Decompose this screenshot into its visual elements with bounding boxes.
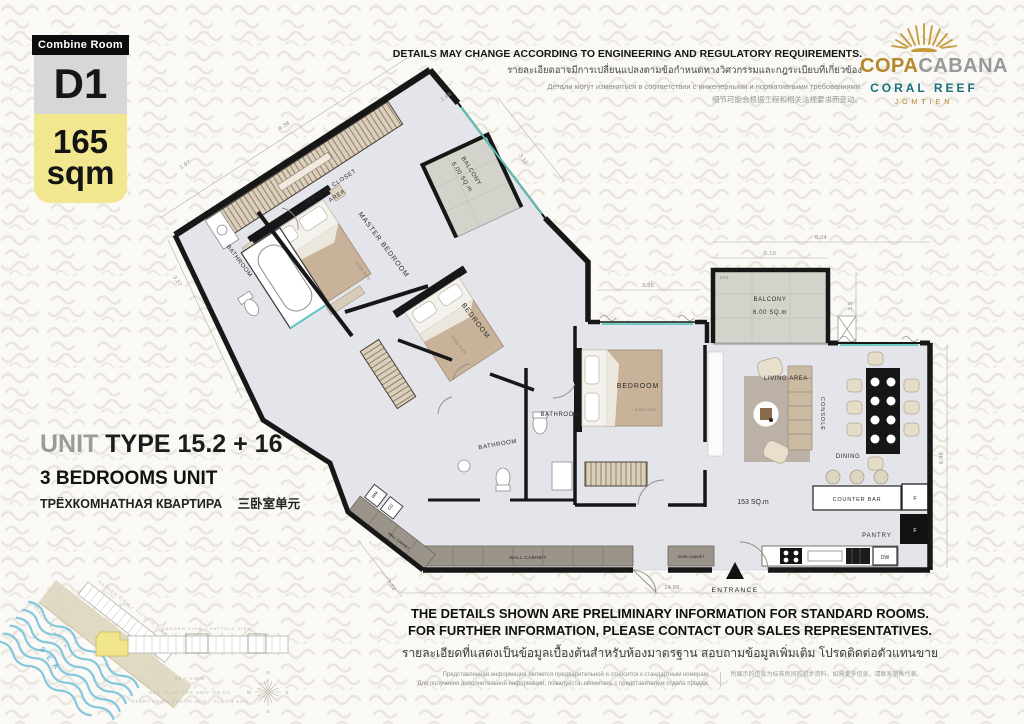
sunburst-icon [860, 20, 988, 52]
dim-balcony1-side: 3.10 [517, 153, 529, 166]
compass-w: W [247, 690, 252, 695]
brand-logo: COPACABANA CORAL REEF JOMTIEN [860, 20, 988, 106]
dim-bottom: 14.88 [664, 585, 679, 591]
brand-location: JOMTIEN [860, 99, 988, 106]
console-label: CONSOLE [819, 397, 825, 431]
bottom-disclaimer: THE DETAILS SHOWN ARE PRELIMINARY INFORM… [392, 606, 948, 689]
key-plan-caption-2: START FROM FLOOR 40th - FLOOR 54th [131, 699, 249, 705]
fridge-box: F [902, 484, 928, 510]
compass-icon [255, 679, 281, 705]
bedrooms-ru: ТРЁХКОМНАТНАЯ КВАРТИРА [40, 497, 222, 511]
kitchen-strip: DW [762, 546, 898, 566]
bottom-disclaimer-en2: FOR FURTHER INFORMATION, PLEASE CONTACT … [392, 623, 948, 640]
bottom-disclaimer-en1: THE DETAILS SHOWN ARE PRELIMINARY INFORM… [392, 606, 948, 623]
dim-left-2: 3.57 [171, 275, 183, 288]
brand-subtitle: CORAL REEF [860, 81, 988, 95]
brand-wordmark: COPACABANA [860, 55, 988, 78]
combine-room-tag: Combine Room [32, 35, 129, 55]
balcony-2-name: BALCONY [754, 297, 787, 303]
dim-end-wall: 4.38 [278, 120, 291, 132]
brochure-page: BALCONY 6.00 SQ.m BALCONY 6.00 SQ.m SPD. [0, 0, 1024, 724]
unit-type-title: UNIT TYPE 15.2 + 16 [40, 430, 300, 459]
key-plan-caption-1: KEY PLAN FOR UNIT ON D1 [149, 690, 231, 696]
pantry-label: PANTRY [862, 533, 892, 539]
dishwasher-label: DW [881, 555, 890, 561]
unit-badge: Combine Room D1 165 sqm [32, 35, 129, 203]
dim-left-1: 1.97 [179, 159, 192, 171]
wall-cabinet-strip: WALL CABINET [423, 546, 633, 566]
sea-view-label: SEA VIEW [174, 676, 205, 681]
unit-area-badge: 165 sqm [34, 114, 127, 203]
dim-bedroom3-window: 3.36 [642, 283, 654, 289]
spd-label: SPD. [720, 276, 730, 280]
brand-word-right: CABANA [918, 55, 1008, 77]
balcony-2-area: 6.00 SQ.m [753, 310, 787, 316]
bedroom-3-bed [574, 348, 662, 432]
bottom-disclaimer-th: รายละเอียดที่แสดงเป็นข้อมูลเบื้องต้นสำหร… [392, 644, 948, 663]
shoe-cabinet-label: SHOE CABINET [678, 555, 706, 559]
wall-cabinet-label: WALL CABINET [509, 555, 546, 560]
bedrooms-intl: ТРЁХКОМНАТНАЯ КВАРТИРА 三卧室单元 [40, 493, 300, 512]
compass-e: E [285, 690, 288, 695]
counter-bar-label: COUNTER BAR [833, 497, 882, 503]
bedroom-3-curtain [708, 352, 723, 456]
garden-view-horizontal-label: GARDEN VIEW / PATTAYA VIEW [162, 626, 253, 631]
unit-info: UNIT TYPE 15.2 + 16 3 BEDROOMS UNIT ТРЁХ… [40, 430, 300, 512]
unit-area-unit: sqm [34, 157, 127, 188]
key-plan-horizontal-wing [128, 634, 288, 653]
divider [720, 672, 721, 687]
dim-right-side: 6.48 [939, 452, 945, 464]
top-disclaimer: DETAILS MAY CHANGE ACCORDING TO ENGINEER… [382, 48, 862, 105]
total-area-label: 153 SQ.m [737, 499, 769, 506]
bedrooms-zh: 三卧室单元 [238, 497, 301, 511]
shoe-cabinet-strip: SHOE CABINET [668, 546, 714, 566]
bedroom-3-wardrobe [585, 462, 647, 486]
balcony-2: BALCONY 6.00 SQ.m SPD. [713, 270, 856, 343]
top-disclaimer-zh: 细节可能会根据工程和相关法规要求而变动。 [382, 94, 862, 105]
top-disclaimer-ru: Детали могут изменяться в соответствии с… [382, 82, 862, 91]
dining-label: DINING [836, 454, 861, 460]
dim-balcony2-gap: 1.5 [848, 302, 854, 311]
top-disclaimer-en: DETAILS MAY CHANGE ACCORDING TO ENGINEER… [382, 48, 862, 60]
bathroom-3-label: BATHROOM [540, 412, 579, 418]
unit-type-value: TYPE 15.2 + 16 [105, 430, 282, 458]
compass-n: N [266, 670, 269, 675]
unit-area-value: 165 [34, 126, 127, 157]
dim-bottom-left: 3.23 [385, 579, 397, 592]
dim-living-top: 6.04 [815, 235, 827, 241]
freezer-box: F [900, 514, 930, 544]
bottom-disclaimer-small-row: Представленная информация является предв… [392, 671, 948, 689]
brand-word-left: COPA [860, 55, 918, 77]
living-area-label: LIVING AREA [764, 376, 808, 382]
bottom-disclaimer-ru: Представленная информация является предв… [417, 671, 709, 689]
bottom-disclaimer-zh: 所展示的信息为标准房间的初步资料，如需更多信息，请联系销售代表。 [731, 671, 923, 680]
unit-code: D1 [34, 55, 127, 114]
bedrooms-en: 3 BEDROOMS UNIT [40, 468, 300, 490]
key-plan: DIRECT SEA VIEW S E A GARDEN VIEW / PATT… [0, 575, 289, 724]
top-disclaimer-th: รายละเอียดอาจมีการเปลี่ยนแปลงตามข้อกำหนด… [382, 63, 862, 78]
dim-balcony2-width: 5.10 [764, 251, 776, 257]
unit-type-prefix: UNIT [40, 430, 98, 458]
bottom-disclaimer-ru1: Представленная информация является предв… [417, 671, 709, 680]
bedroom-3-size-label: KING SIZE [635, 408, 657, 412]
bottom-disclaimer-ru2: Для получения дополнительной информации,… [417, 680, 709, 689]
compass-s: S [266, 709, 269, 714]
bedroom-3-label: BEDROOM [617, 383, 659, 390]
counter-bar: COUNTER BAR [813, 470, 901, 510]
